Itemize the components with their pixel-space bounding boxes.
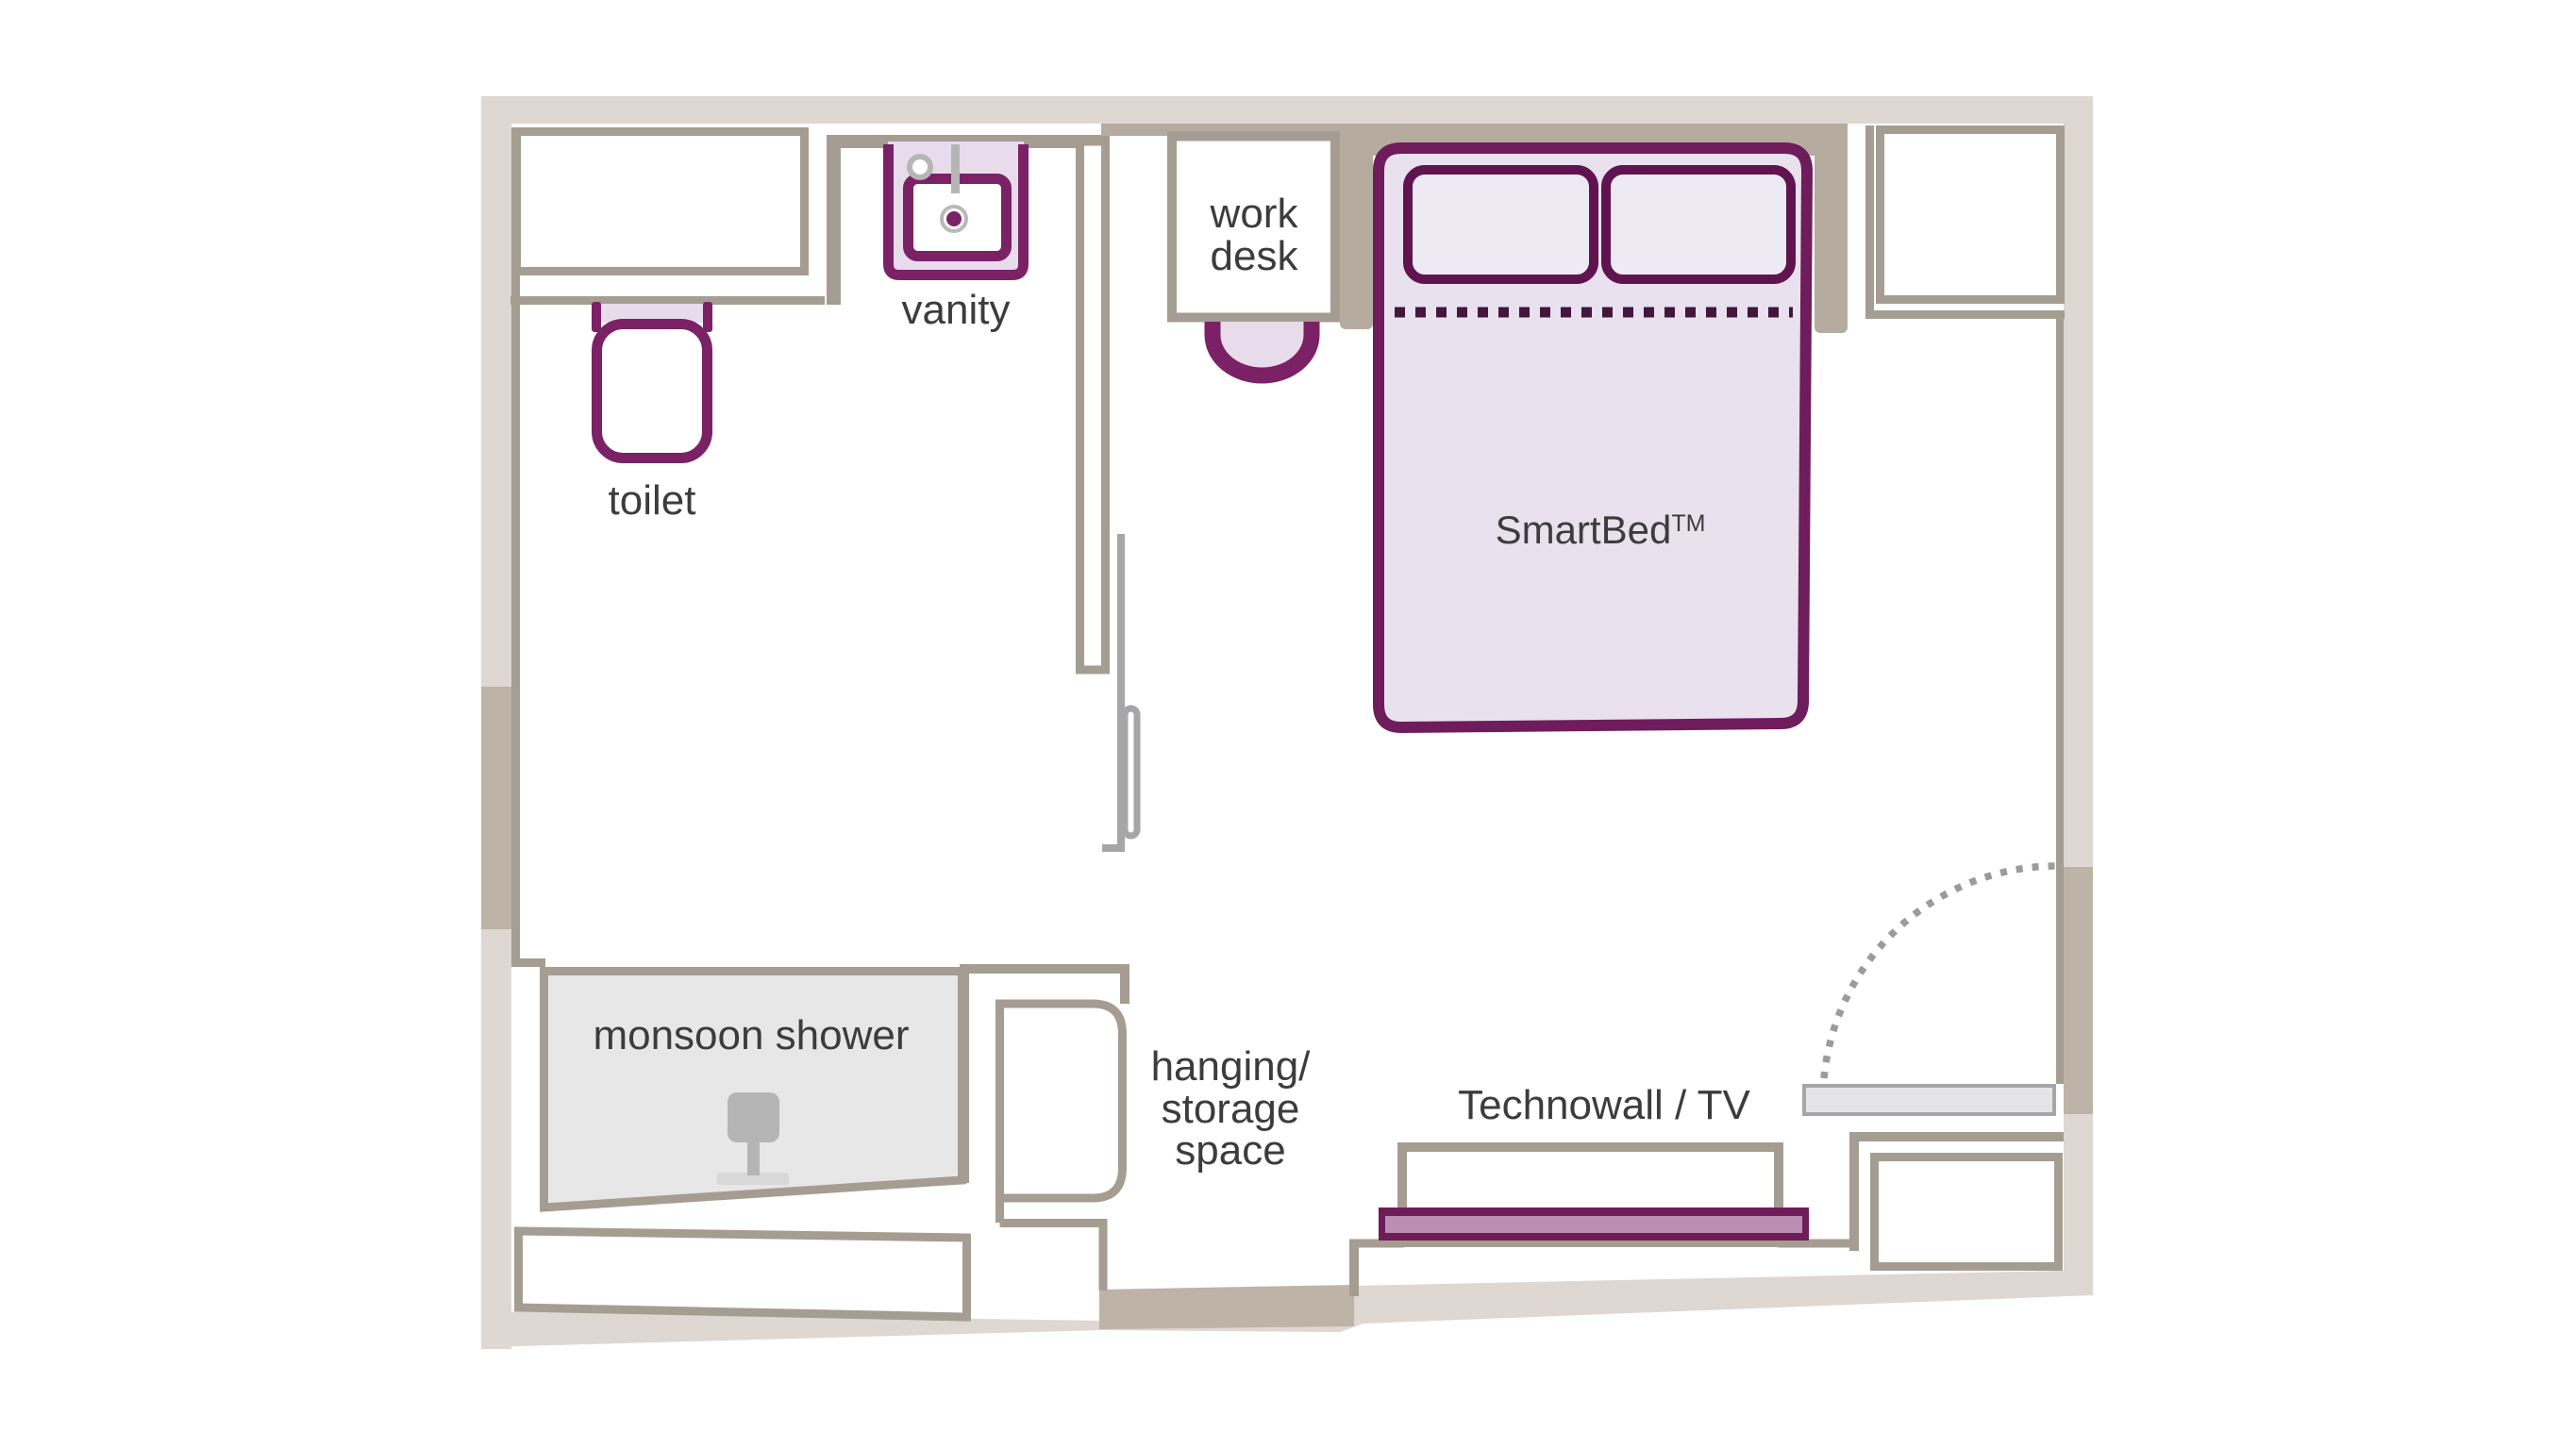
svg-text:toilet: toilet [609, 477, 696, 524]
svg-text:storage: storage [1162, 1086, 1300, 1132]
svg-text:hanging/: hanging/ [1151, 1043, 1312, 1090]
svg-text:Technowall / TV: Technowall / TV [1458, 1082, 1750, 1128]
svg-text:vanity: vanity [902, 287, 1011, 333]
svg-text:monsoon shower: monsoon shower [593, 1012, 909, 1058]
svg-text:space: space [1175, 1127, 1285, 1174]
svg-text:work: work [1210, 191, 1299, 237]
svg-text:desk: desk [1211, 233, 1299, 279]
